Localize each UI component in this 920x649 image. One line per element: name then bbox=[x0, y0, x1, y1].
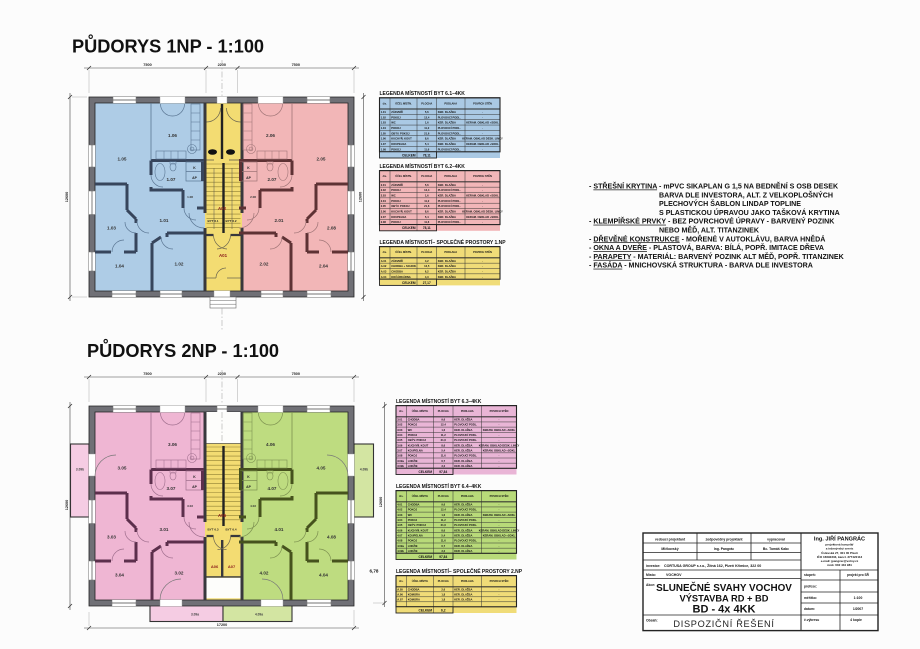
svg-text:vypracoval: vypracoval bbox=[767, 538, 785, 542]
svg-text:1/2007: 1/2007 bbox=[853, 607, 863, 611]
svg-text:mob: 602 434 981: mob: 602 434 981 bbox=[827, 563, 852, 567]
svg-text:POKOJ: POKOJ bbox=[408, 423, 418, 427]
svg-text:PODLAHA: PODLAHA bbox=[444, 101, 457, 105]
svg-text:4.08: 4.08 bbox=[327, 535, 336, 540]
svg-text:LEGENDA MÍSTNOSTÍ– SPOLEČNÉ: LEGENDA MÍSTNOSTÍ– SPOLEČNÉ PROSTORY 1.N… bbox=[380, 238, 507, 246]
svg-text:4,3: 4,3 bbox=[425, 275, 429, 279]
svg-text:3.07: 3.07 bbox=[167, 486, 176, 491]
svg-text:CHODBA: CHODBA bbox=[408, 503, 420, 507]
svg-text:-: - bbox=[482, 221, 483, 224]
svg-text:CELKEM: CELKEM bbox=[402, 281, 416, 285]
svg-text:PLOCHA: PLOCHA bbox=[421, 174, 432, 178]
svg-text:4.09b: 4.09b bbox=[397, 549, 404, 553]
svg-text:1.08: 1.08 bbox=[187, 195, 193, 199]
svg-text:1.06: 1.06 bbox=[168, 133, 177, 138]
svg-text:-: - bbox=[482, 200, 483, 203]
svg-text:3.01: 3.01 bbox=[397, 418, 403, 422]
svg-text:6,2: 6,2 bbox=[441, 608, 446, 612]
svg-text:3.09a: 3.09a bbox=[397, 459, 404, 463]
svg-text:3.05: 3.05 bbox=[397, 438, 403, 442]
svg-text:A.06: A.06 bbox=[397, 592, 403, 596]
svg-text:Ing. Pangrác: Ing. Pangrác bbox=[714, 547, 734, 551]
svg-text:KERAM. OBKLAD DESK. LINKY: KERAM. OBKLAD DESK. LINKY bbox=[479, 443, 520, 447]
svg-text:78,11: 78,11 bbox=[423, 153, 431, 157]
svg-text:97,84: 97,84 bbox=[439, 555, 447, 559]
svg-text:LEGENDA MÍSTNOSTÍ BYT 6.2: LEGENDA MÍSTNOSTÍ BYT 6.2–4KK bbox=[380, 162, 466, 170]
svg-text:POKOJ: POKOJ bbox=[391, 147, 401, 151]
svg-text:-: - bbox=[499, 465, 500, 468]
svg-text:4.09b: 4.09b bbox=[360, 468, 368, 472]
svg-text:VOCHOV: VOCHOV bbox=[666, 573, 682, 577]
svg-text:1:100: 1:100 bbox=[854, 596, 863, 600]
svg-text:CELKEM: CELKEM bbox=[419, 470, 433, 474]
svg-text:21,6: 21,6 bbox=[424, 204, 430, 208]
svg-text:21,6: 21,6 bbox=[441, 523, 447, 527]
svg-text:BYT 6.4: BYT 6.4 bbox=[225, 528, 236, 532]
svg-text:projekt pro SŘ: projekt pro SŘ bbox=[847, 572, 870, 577]
svg-text:5,4: 5,4 bbox=[425, 215, 429, 219]
svg-text:4,2: 4,2 bbox=[425, 259, 429, 263]
svg-text:3.04: 3.04 bbox=[115, 573, 124, 578]
svg-text:-: - bbox=[499, 460, 500, 463]
svg-text:KERAM. OBKLAD +SOKL: KERAM. OBKLAD +SOKL bbox=[466, 193, 499, 197]
svg-text:PODLAHA: PODLAHA bbox=[461, 579, 474, 583]
svg-text:12,4: 12,4 bbox=[424, 115, 430, 119]
svg-text:KERAM. OBKLAD +SOKL: KERAM. OBKLAD +SOKL bbox=[483, 448, 516, 452]
svg-text:-: - bbox=[482, 260, 483, 263]
svg-text:A02: A02 bbox=[218, 206, 227, 211]
svg-text:1,6: 1,6 bbox=[425, 193, 429, 197]
svg-text:7500: 7500 bbox=[143, 63, 151, 67]
svg-text:4.01: 4.01 bbox=[397, 503, 403, 507]
svg-text:Místo:: Místo: bbox=[646, 573, 656, 577]
svg-text:-: - bbox=[482, 276, 483, 279]
svg-text:-: - bbox=[499, 593, 500, 596]
svg-text:POKOJ: POKOJ bbox=[408, 454, 418, 458]
svg-text:BYT 6.2: BYT 6.2 bbox=[225, 219, 236, 223]
svg-text:POKOJ: POKOJ bbox=[391, 126, 401, 130]
svg-text:4.04: 4.04 bbox=[397, 518, 403, 522]
svg-text:3.03: 3.03 bbox=[397, 428, 403, 432]
svg-text:3.04: 3.04 bbox=[397, 433, 403, 437]
svg-text:3.05: 3.05 bbox=[118, 466, 127, 471]
svg-text:KERAM. OBKLAD DESK. LINKY: KERAM. OBKLAD DESK. LINKY bbox=[479, 528, 520, 532]
svg-text:WC: WC bbox=[408, 513, 413, 517]
svg-text:CHODBA: CHODBA bbox=[391, 269, 403, 273]
svg-text:AP: AP bbox=[246, 485, 251, 489]
svg-text:11,6: 11,6 bbox=[424, 220, 430, 224]
svg-text:2.02: 2.02 bbox=[260, 262, 269, 267]
svg-text:1.06: 1.06 bbox=[381, 137, 387, 141]
svg-text:PODLAHA: PODLAHA bbox=[444, 174, 457, 178]
svg-text:4.06: 4.06 bbox=[397, 528, 403, 532]
svg-text:21,6: 21,6 bbox=[424, 131, 430, 135]
svg-text:CHODBA: CHODBA bbox=[408, 418, 420, 422]
svg-text:12,5: 12,5 bbox=[424, 264, 430, 268]
svg-text:8,6: 8,6 bbox=[441, 528, 445, 532]
svg-text:PLOCHA: PLOCHA bbox=[438, 579, 449, 583]
svg-text:11,6: 11,6 bbox=[441, 539, 447, 543]
svg-text:12600: 12600 bbox=[65, 500, 69, 511]
svg-text:KERAM. OBKLAD DESK. LINKY: KERAM. OBKLAD DESK. LINKY bbox=[462, 210, 503, 214]
svg-text:9,6: 9,6 bbox=[441, 418, 445, 422]
svg-text:-: - bbox=[482, 189, 483, 192]
svg-text:11,2: 11,2 bbox=[441, 433, 447, 437]
svg-text:4.05: 4.05 bbox=[317, 466, 326, 471]
svg-text:čís.: čís. bbox=[383, 101, 388, 105]
svg-text:A01: A01 bbox=[219, 253, 228, 258]
svg-text:AP: AP bbox=[246, 176, 251, 180]
svg-text:-: - bbox=[482, 116, 483, 119]
svg-text:-: - bbox=[499, 455, 500, 458]
svg-text:Mlčkovský: Mlčkovský bbox=[661, 547, 678, 551]
svg-text:3.08: 3.08 bbox=[397, 454, 403, 458]
svg-text:2.07: 2.07 bbox=[268, 177, 277, 182]
svg-text:12600: 12600 bbox=[379, 497, 383, 508]
svg-text:KERAM. OBKLAD +SOKL: KERAM. OBKLAD +SOKL bbox=[466, 121, 499, 125]
svg-text:1.08: 1.08 bbox=[381, 147, 387, 151]
svg-text:8,6: 8,6 bbox=[441, 443, 445, 447]
svg-text:2.05: 2.05 bbox=[381, 204, 387, 208]
svg-text:CELKEM: CELKEM bbox=[402, 153, 416, 157]
svg-text:2.04: 2.04 bbox=[381, 199, 387, 203]
svg-text:- DŘEVĚNÉ KONSTRUKCE - MOŘENÉ: - DŘEVĚNÉ KONSTRUKCE - MOŘENÉ V AUTOKLÁV… bbox=[589, 234, 825, 243]
svg-text:CORTUSA GROUP s.r.o., Žitná: CORTUSA GROUP s.r.o., Žitná 162, Plzeň K… bbox=[664, 563, 761, 568]
svg-text:-: - bbox=[482, 270, 483, 273]
svg-text:WC: WC bbox=[391, 121, 396, 125]
svg-text:3,2: 3,2 bbox=[441, 464, 445, 468]
svg-text:4.09a: 4.09a bbox=[397, 544, 404, 548]
svg-text:PŮDORYS 1NP - 1:100: PŮDORYS 1NP - 1:100 bbox=[72, 35, 264, 57]
svg-text:1.01: 1.01 bbox=[160, 218, 169, 223]
svg-text:-: - bbox=[499, 540, 500, 543]
svg-text:-: - bbox=[499, 550, 500, 553]
svg-text:9,6: 9,6 bbox=[441, 503, 445, 507]
svg-text:27,17: 27,17 bbox=[423, 281, 431, 285]
svg-text:3.06: 3.06 bbox=[168, 442, 177, 447]
svg-text:-: - bbox=[499, 545, 500, 548]
svg-text:- FASÁDA - MNICHOVSKÁ STRUKT: - FASÁDA - MNICHOVSKÁ STRUKTURA - BARVA … bbox=[589, 261, 813, 270]
svg-text:-: - bbox=[482, 111, 483, 114]
svg-text:1,8: 1,8 bbox=[441, 592, 445, 596]
svg-text:VÝSTAVBA RD + BD: VÝSTAVBA RD + BD bbox=[680, 593, 769, 604]
svg-text:POKOJ: POKOJ bbox=[391, 199, 401, 203]
svg-text:2.08: 2.08 bbox=[327, 226, 336, 231]
svg-text:KERAM. OBKLAD +SOKL: KERAM. OBKLAD +SOKL bbox=[483, 513, 516, 517]
svg-text:A.05: A.05 bbox=[397, 587, 403, 591]
svg-text:4.04: 4.04 bbox=[319, 573, 328, 578]
svg-text:A.02: A.02 bbox=[381, 264, 387, 268]
svg-text:3.06: 3.06 bbox=[397, 443, 403, 447]
svg-text:11,2: 11,2 bbox=[441, 518, 447, 522]
svg-text:čís.: čís. bbox=[399, 409, 404, 413]
svg-text:A.03: A.03 bbox=[381, 269, 387, 273]
svg-text:6,78: 6,78 bbox=[370, 569, 379, 574]
svg-text:4.09a: 4.09a bbox=[255, 613, 263, 617]
svg-text:LEGENDA MÍSTNOSTÍ BYT 6.4: LEGENDA MÍSTNOSTÍ BYT 6.4–4KK bbox=[396, 482, 482, 490]
svg-text:3.03: 3.03 bbox=[107, 535, 116, 540]
svg-text:4.05: 4.05 bbox=[397, 523, 403, 527]
svg-text:5,4: 5,4 bbox=[441, 533, 445, 537]
svg-text:12,4: 12,4 bbox=[424, 188, 430, 192]
svg-text:PLOCHA: PLOCHA bbox=[438, 494, 449, 498]
svg-text:1.07: 1.07 bbox=[381, 142, 387, 146]
svg-text:4.03: 4.03 bbox=[397, 513, 403, 517]
svg-text:SLUNEČNÉ SVAHY VOCHOV: SLUNEČNÉ SVAHY VOCHOV bbox=[656, 582, 792, 594]
svg-text:CELKEM: CELKEM bbox=[419, 608, 433, 612]
svg-text:POKOJ: POKOJ bbox=[408, 518, 418, 522]
svg-text:čís.: čís. bbox=[383, 174, 388, 178]
svg-text:A.07: A.07 bbox=[397, 597, 403, 601]
svg-text:profese:: profese: bbox=[804, 585, 817, 589]
svg-text:datum:: datum: bbox=[804, 607, 815, 611]
svg-text:KERAM. OBKLAD DESK. LINKY: KERAM. OBKLAD DESK. LINKY bbox=[462, 137, 503, 141]
svg-text:12,4: 12,4 bbox=[441, 423, 447, 427]
svg-text:A05: A05 bbox=[218, 513, 227, 518]
svg-text:PODLAHA: PODLAHA bbox=[444, 250, 457, 254]
svg-text:8,6: 8,6 bbox=[425, 137, 429, 141]
svg-text:7500: 7500 bbox=[292, 63, 300, 67]
svg-text:2,6: 2,6 bbox=[441, 587, 445, 591]
svg-text:11,2: 11,2 bbox=[424, 126, 430, 130]
svg-text:1.05: 1.05 bbox=[381, 131, 387, 135]
svg-text:- STŘEŠNÍ KRYTINA - mPVC SIKAP: - STŘEŠNÍ KRYTINA - mPVC SIKAPLAN G 1,5 … bbox=[589, 182, 839, 191]
svg-text:3.03: 3.03 bbox=[187, 504, 193, 508]
svg-text:POKOJ: POKOJ bbox=[391, 115, 401, 119]
svg-text:4.02: 4.02 bbox=[260, 571, 269, 576]
svg-text:- OKNA A DVEŘE - PLASTOVÁ, BAR: - OKNA A DVEŘE - PLASTOVÁ, BARVA: BÍLÁ, … bbox=[589, 243, 824, 252]
svg-text:5,4: 5,4 bbox=[441, 448, 445, 452]
svg-text:CELKEM: CELKEM bbox=[402, 226, 416, 230]
svg-text:KERAM. OBKLAD +SOKL: KERAM. OBKLAD +SOKL bbox=[483, 533, 516, 537]
svg-text:-: - bbox=[499, 424, 500, 427]
svg-text:S PLASTICKOU ÚPRAVOU JAKO TAŠK: S PLASTICKOU ÚPRAVOU JAKO TAŠKOVÁ KRYTIN… bbox=[659, 208, 840, 217]
svg-text:4 kopie: 4 kopie bbox=[850, 618, 862, 622]
svg-text:-: - bbox=[499, 588, 500, 591]
svg-text:Ing. JIŘÍ PANGRÁC: Ing. JIŘÍ PANGRÁC bbox=[814, 535, 865, 543]
svg-text:WC: WC bbox=[391, 193, 396, 197]
svg-text:PLECHOVÝCH ŠABLON LINDAP TOPLI: PLECHOVÝCH ŠABLON LINDAP TOPLINE bbox=[659, 199, 801, 208]
svg-text:LEGENDA MÍSTNOSTÍ BYT 6.1: LEGENDA MÍSTNOSTÍ BYT 6.1–4KK bbox=[380, 89, 466, 97]
svg-text:2.03: 2.03 bbox=[381, 193, 387, 197]
svg-text:CELKEM: CELKEM bbox=[419, 555, 433, 559]
svg-text:měřítko:: měřítko: bbox=[804, 596, 817, 600]
svg-text:11,2: 11,2 bbox=[424, 199, 430, 203]
svg-text:POKOJ: POKOJ bbox=[408, 539, 418, 543]
svg-text:3.02: 3.02 bbox=[175, 571, 184, 576]
svg-text:Bc. Tomáš Kabc: Bc. Tomáš Kabc bbox=[763, 547, 789, 551]
svg-text:čís.: čís. bbox=[383, 250, 388, 254]
svg-text:1,6: 1,6 bbox=[425, 121, 429, 125]
svg-text:4.06: 4.06 bbox=[266, 442, 275, 447]
svg-text:DISPOZIČNÍ ŘEŠENÍ: DISPOZIČNÍ ŘEŠENÍ bbox=[673, 619, 774, 629]
svg-text:A06: A06 bbox=[211, 564, 219, 569]
svg-text:-: - bbox=[482, 184, 483, 187]
svg-text:KERAM. OBKLAD +SOKL: KERAM. OBKLAD +SOKL bbox=[466, 215, 499, 219]
svg-text:A07: A07 bbox=[228, 564, 236, 569]
svg-text:2.04: 2.04 bbox=[319, 264, 328, 269]
svg-text:17200: 17200 bbox=[217, 623, 228, 627]
svg-text:3.01: 3.01 bbox=[160, 527, 169, 532]
svg-text:3.09b: 3.09b bbox=[76, 468, 84, 472]
svg-text:investor:: investor: bbox=[646, 564, 660, 568]
svg-text:-: - bbox=[482, 127, 483, 130]
svg-text:8,6: 8,6 bbox=[425, 210, 429, 214]
svg-text:-: - bbox=[499, 439, 500, 442]
svg-text:6,2: 6,2 bbox=[425, 269, 429, 273]
svg-text:AP: AP bbox=[192, 176, 197, 180]
svg-text:1.02: 1.02 bbox=[381, 115, 387, 119]
svg-text:78,11: 78,11 bbox=[423, 226, 431, 230]
svg-text:97,84: 97,84 bbox=[439, 470, 447, 474]
svg-text:1.04: 1.04 bbox=[381, 126, 387, 130]
svg-text:2.05: 2.05 bbox=[317, 157, 326, 162]
svg-text:čís.: čís. bbox=[399, 579, 404, 583]
svg-text:-: - bbox=[482, 265, 483, 268]
svg-text:-: - bbox=[482, 132, 483, 135]
svg-text:1.03: 1.03 bbox=[381, 121, 387, 125]
svg-text:1.05: 1.05 bbox=[118, 157, 127, 162]
svg-text:3.09a: 3.09a bbox=[191, 613, 199, 617]
svg-text:PŮDORYS 2NP - 1:100: PŮDORYS 2NP - 1:100 bbox=[87, 339, 279, 361]
svg-text:KOUPELNA: KOUPELNA bbox=[408, 533, 423, 537]
svg-text:1,6: 1,6 bbox=[441, 428, 445, 432]
svg-text:-: - bbox=[499, 598, 500, 601]
svg-text:PLOCHA: PLOCHA bbox=[421, 250, 432, 254]
svg-text:A.01: A.01 bbox=[381, 259, 387, 263]
svg-text:BYT 6.3: BYT 6.3 bbox=[207, 528, 218, 532]
svg-text:2.08: 2.08 bbox=[381, 220, 387, 224]
svg-text:NEBO MĚĎ, ALT. TITANZINEK: NEBO MĚĎ, ALT. TITANZINEK bbox=[659, 226, 760, 235]
svg-text:CHODBA: CHODBA bbox=[408, 587, 420, 591]
svg-text:PLOCHA: PLOCHA bbox=[438, 409, 449, 413]
svg-text:BARVA DLE INVESTORA, ALT. Z: BARVA DLE INVESTORA, ALT. Z VELKOPLOŠNÝC… bbox=[659, 190, 833, 199]
svg-text:-: - bbox=[499, 509, 500, 512]
svg-text:1.02: 1.02 bbox=[175, 262, 184, 267]
svg-text:2.07: 2.07 bbox=[381, 215, 387, 219]
svg-text:2.08: 2.08 bbox=[250, 195, 256, 199]
svg-text:2.01: 2.01 bbox=[381, 183, 387, 187]
svg-text:6,7: 6,7 bbox=[441, 544, 445, 548]
svg-text:12600: 12600 bbox=[65, 192, 69, 203]
svg-text:Akce:: Akce: bbox=[646, 583, 655, 587]
svg-text:A.04: A.04 bbox=[381, 275, 387, 279]
svg-text:4.03: 4.03 bbox=[250, 504, 256, 508]
svg-text:-: - bbox=[499, 519, 500, 522]
svg-text:POKOJ: POKOJ bbox=[408, 433, 418, 437]
svg-text:AP: AP bbox=[192, 485, 197, 489]
svg-text:-: - bbox=[499, 524, 500, 527]
svg-text:3.02: 3.02 bbox=[397, 423, 403, 427]
svg-text:4.02: 4.02 bbox=[397, 508, 403, 512]
svg-text:čís.: čís. bbox=[399, 494, 404, 498]
svg-text:11,6: 11,6 bbox=[424, 147, 430, 151]
svg-text:3,2: 3,2 bbox=[441, 549, 445, 553]
svg-text:5,6: 5,6 bbox=[425, 183, 429, 187]
svg-text:2.06: 2.06 bbox=[381, 210, 387, 214]
svg-text:-: - bbox=[482, 148, 483, 151]
svg-text:4.01: 4.01 bbox=[275, 527, 284, 532]
svg-text:KOUPELNA: KOUPELNA bbox=[408, 448, 423, 452]
svg-text:PODLAHA: PODLAHA bbox=[461, 409, 474, 413]
svg-text:1,8: 1,8 bbox=[441, 597, 445, 601]
svg-text:5,4: 5,4 bbox=[425, 142, 429, 146]
svg-text:KOMORA: KOMORA bbox=[408, 592, 420, 596]
svg-text:BYT 6.1: BYT 6.1 bbox=[207, 219, 218, 223]
svg-text:LEGENDA MÍSTNOSTÍ BYT 6.3: LEGENDA MÍSTNOSTÍ BYT 6.3–4KK bbox=[396, 397, 482, 405]
svg-text:- PARAPETY - MATERIÁL: BARVENÝ: - PARAPETY - MATERIÁL: BARVENÝ POZINK AL… bbox=[589, 252, 845, 261]
svg-text:č.výkresu: č.výkresu bbox=[804, 618, 819, 622]
svg-text:- KLEMPÍŘSKÉ PRVKY - BEZ POVRC: - KLEMPÍŘSKÉ PRVKY - BEZ POVRCHOVÉ ÚPRAV… bbox=[589, 217, 835, 226]
svg-text:3.07: 3.07 bbox=[397, 448, 403, 452]
svg-text:BD - 4x 4KK: BD - 4x 4KK bbox=[693, 604, 756, 616]
svg-text:POKOJ: POKOJ bbox=[408, 508, 418, 512]
svg-text:1.07: 1.07 bbox=[167, 177, 176, 182]
svg-text:2.02: 2.02 bbox=[381, 188, 387, 192]
svg-text:KERAM. OBKLAD +SOKL: KERAM. OBKLAD +SOKL bbox=[466, 142, 499, 146]
svg-text:1.03: 1.03 bbox=[107, 226, 116, 231]
svg-text:KOUPELNA: KOUPELNA bbox=[391, 215, 406, 219]
svg-text:Obsah:: Obsah: bbox=[646, 619, 658, 623]
svg-text:21,6: 21,6 bbox=[441, 438, 447, 442]
svg-text:PLOCHA: PLOCHA bbox=[421, 101, 432, 105]
svg-text:-: - bbox=[499, 434, 500, 437]
svg-text:12600: 12600 bbox=[359, 192, 363, 203]
svg-text:KOUPELNA: KOUPELNA bbox=[391, 142, 406, 146]
svg-text:LEGENDA MÍSTNOSTÍ– SPOLEČNÉ: LEGENDA MÍSTNOSTÍ– SPOLEČNÉ PROSTORY 2.N… bbox=[396, 567, 523, 575]
svg-text:-: - bbox=[499, 419, 500, 422]
svg-text:-: - bbox=[499, 504, 500, 507]
svg-text:KERAM. OBKLAD +SOKL: KERAM. OBKLAD +SOKL bbox=[483, 428, 516, 432]
svg-text:7500: 7500 bbox=[292, 372, 300, 376]
svg-text:2.06: 2.06 bbox=[266, 133, 275, 138]
svg-text:stupeň:: stupeň: bbox=[804, 573, 816, 577]
svg-text:zodpovědný projektant: zodpovědný projektant bbox=[705, 538, 743, 542]
svg-text:-: - bbox=[482, 205, 483, 208]
svg-text:PODLAHA: PODLAHA bbox=[461, 494, 474, 498]
svg-text:4.07: 4.07 bbox=[268, 486, 277, 491]
svg-text:12,4: 12,4 bbox=[441, 508, 447, 512]
svg-text:WC: WC bbox=[408, 428, 413, 432]
svg-text:4.07: 4.07 bbox=[397, 533, 403, 537]
svg-text:KOMORA: KOMORA bbox=[408, 597, 420, 601]
svg-text:3.09b: 3.09b bbox=[397, 464, 404, 468]
svg-text:2.01: 2.01 bbox=[275, 218, 284, 223]
svg-text:POKOJ: POKOJ bbox=[391, 188, 401, 192]
svg-text:4.08: 4.08 bbox=[397, 539, 403, 543]
svg-text:11,6: 11,6 bbox=[441, 454, 447, 458]
svg-text:vedoucí projektant: vedoucí projektant bbox=[655, 538, 686, 542]
svg-text:POKOJ: POKOJ bbox=[391, 220, 401, 224]
svg-text:1,6: 1,6 bbox=[441, 513, 445, 517]
svg-text:CHODBA + SCHOD.: CHODBA + SCHOD. bbox=[391, 264, 416, 268]
svg-text:5,6: 5,6 bbox=[425, 110, 429, 114]
svg-text:1.04: 1.04 bbox=[115, 264, 124, 269]
svg-text:6,7: 6,7 bbox=[441, 459, 445, 463]
svg-text:1.01: 1.01 bbox=[381, 110, 387, 114]
svg-text:7500: 7500 bbox=[143, 372, 151, 376]
